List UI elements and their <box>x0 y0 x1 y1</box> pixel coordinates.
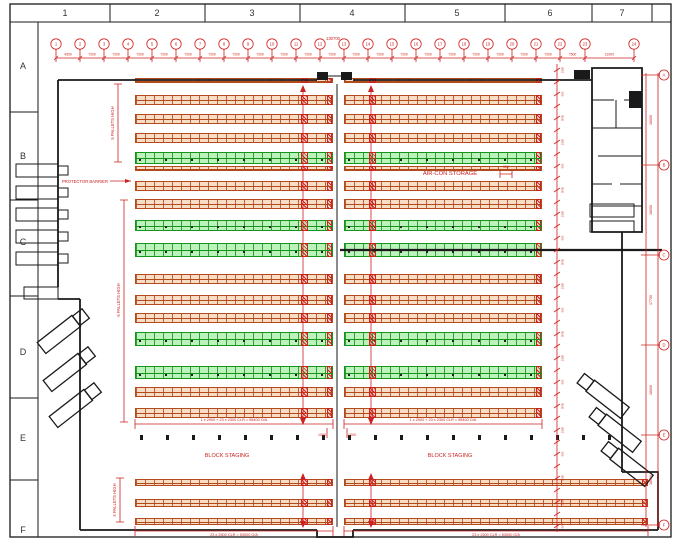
rack-row <box>344 518 648 525</box>
flue-marker <box>301 366 308 379</box>
rack-row <box>344 295 542 305</box>
rack-end-protector <box>536 332 541 346</box>
rack-row <box>135 152 333 164</box>
flue-marker <box>301 295 308 305</box>
rack-end-protector <box>536 152 541 164</box>
rack-row <box>135 243 333 257</box>
flue-marker <box>301 199 308 209</box>
flue-marker <box>301 408 308 418</box>
staging-tick <box>270 435 273 440</box>
flue-marker <box>301 313 308 323</box>
racking-layer <box>0 0 680 542</box>
staging-tick <box>452 435 455 440</box>
rack-row <box>344 199 542 209</box>
rack-row <box>135 220 333 231</box>
flue-marker <box>369 181 376 191</box>
rack-end-protector <box>536 274 541 284</box>
flue-marker <box>301 243 308 257</box>
flue-marker <box>369 243 376 257</box>
rack-end-protector <box>536 114 541 124</box>
rack-end-protector <box>536 313 541 323</box>
flue-marker <box>369 332 376 346</box>
rack-row <box>135 499 333 507</box>
rack-end-protector <box>327 78 332 83</box>
rack-row <box>135 181 333 191</box>
rack-row <box>344 274 542 284</box>
rack-end-protector <box>327 243 332 257</box>
rack-row <box>135 274 333 284</box>
rack-end-protector <box>327 220 332 231</box>
flue-marker <box>369 95 376 105</box>
staging-tick <box>140 435 143 440</box>
staging-tick <box>192 435 195 440</box>
rack-row <box>344 166 542 171</box>
rack-end-protector <box>327 313 332 323</box>
rack-row <box>344 366 542 379</box>
rack-row <box>344 114 542 124</box>
flue-marker <box>301 518 308 525</box>
staging-tick <box>400 435 403 440</box>
flue-marker <box>301 181 308 191</box>
rack-end-protector <box>327 295 332 305</box>
flue-marker <box>301 133 308 143</box>
rack-end-protector <box>536 243 541 257</box>
rack-end-protector <box>327 387 332 397</box>
flue-marker <box>301 166 308 171</box>
rack-row <box>344 408 542 418</box>
rack-end-protector <box>327 166 332 171</box>
flue-marker <box>301 220 308 231</box>
flue-marker <box>369 408 376 418</box>
rack-row <box>344 78 542 83</box>
rack-row <box>135 366 333 379</box>
flue-marker <box>369 133 376 143</box>
rack-end-protector <box>536 220 541 231</box>
staging-tick <box>166 435 169 440</box>
rack-end-protector <box>536 78 541 83</box>
rack-row <box>344 152 542 164</box>
rack-end-protector <box>327 518 332 525</box>
rack-row <box>344 133 542 143</box>
flue-marker <box>301 274 308 284</box>
rack-row <box>344 313 542 323</box>
flue-marker <box>301 479 308 486</box>
rack-row <box>135 518 333 525</box>
rack-row <box>135 133 333 143</box>
rack-end-protector <box>536 199 541 209</box>
flue-marker <box>369 479 376 486</box>
staging-tick <box>296 435 299 440</box>
rack-end-protector <box>327 479 332 486</box>
rack-end-protector <box>327 408 332 418</box>
flue-marker <box>301 387 308 397</box>
rack-end-protector <box>536 95 541 105</box>
flue-marker <box>369 518 376 525</box>
rack-end-protector <box>327 199 332 209</box>
rack-row <box>344 332 542 346</box>
staging-tick <box>322 435 325 440</box>
flue-marker <box>301 95 308 105</box>
staging-tick <box>582 435 585 440</box>
rack-end-protector <box>327 366 332 379</box>
rack-row <box>135 479 333 486</box>
flue-marker <box>301 152 308 164</box>
rack-row <box>344 479 648 486</box>
staging-tick <box>530 435 533 440</box>
rack-end-protector <box>327 152 332 164</box>
rack-end-protector <box>327 332 332 346</box>
staging-tick <box>348 435 351 440</box>
flue-marker <box>301 114 308 124</box>
rack-row <box>135 387 333 397</box>
rack-row <box>135 166 333 171</box>
staging-tick <box>218 435 221 440</box>
rack-end-protector <box>536 387 541 397</box>
rack-end-protector <box>642 518 647 525</box>
staging-tick <box>556 435 559 440</box>
flue-marker <box>369 199 376 209</box>
warehouse-floor-plan: AIR-CON STORAGE PROTECTOR BARRIER BLOCK … <box>0 0 680 542</box>
flue-marker <box>369 220 376 231</box>
staging-tick <box>426 435 429 440</box>
flue-marker <box>369 166 376 171</box>
rack-end-protector <box>536 166 541 171</box>
rack-row <box>135 78 333 83</box>
rack-row <box>135 408 333 418</box>
staging-tick <box>244 435 247 440</box>
flue-marker <box>369 387 376 397</box>
rack-end-protector <box>327 274 332 284</box>
staging-tick <box>504 435 507 440</box>
rack-row <box>135 332 333 346</box>
staging-tick <box>374 435 377 440</box>
flue-marker <box>369 499 376 507</box>
rack-end-protector <box>536 366 541 379</box>
rack-end-protector <box>327 133 332 143</box>
rack-row <box>344 243 542 257</box>
rack-end-protector <box>327 95 332 105</box>
rack-row <box>135 295 333 305</box>
flue-marker <box>369 274 376 284</box>
flue-marker <box>301 332 308 346</box>
rack-row <box>135 95 333 105</box>
rack-row <box>344 499 648 507</box>
flue-marker <box>369 78 376 83</box>
rack-end-protector <box>327 499 332 507</box>
rack-end-protector <box>327 181 332 191</box>
staging-tick <box>608 435 611 440</box>
rack-end-protector <box>642 499 647 507</box>
rack-row <box>135 199 333 209</box>
flue-marker <box>301 499 308 507</box>
flue-marker <box>301 78 308 83</box>
rack-row <box>344 220 542 231</box>
staging-tick <box>478 435 481 440</box>
flue-marker <box>369 114 376 124</box>
rack-row <box>135 313 333 323</box>
rack-end-protector <box>536 181 541 191</box>
rack-row <box>344 95 542 105</box>
rack-row <box>135 114 333 124</box>
flue-marker <box>369 313 376 323</box>
rack-end-protector <box>536 295 541 305</box>
flue-marker <box>369 366 376 379</box>
rack-row <box>344 181 542 191</box>
rack-end-protector <box>327 114 332 124</box>
rack-end-protector <box>642 479 647 486</box>
flue-marker <box>369 295 376 305</box>
rack-row <box>344 387 542 397</box>
rack-end-protector <box>536 408 541 418</box>
rack-end-protector <box>536 133 541 143</box>
flue-marker <box>369 152 376 164</box>
